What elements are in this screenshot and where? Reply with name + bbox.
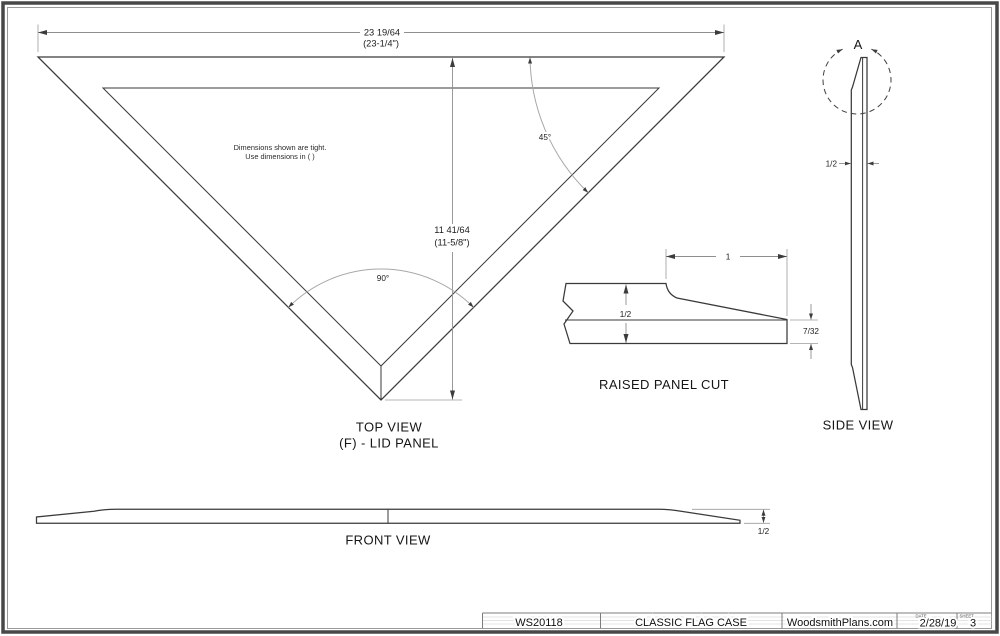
detail-marker-a: A <box>854 37 863 52</box>
side-thickness-dim: 1/2 <box>826 160 838 169</box>
website: WoodsmithPlans.com <box>787 617 893 629</box>
front-view-label: FRONT VIEW <box>345 533 431 548</box>
plan-number: WS20118 <box>515 617 563 629</box>
side-view-label: SIDE VIEW <box>823 418 894 433</box>
apex-angle-value: 90° <box>377 274 389 283</box>
drawing-page: Dimensions shown are tight. Use dimensio… <box>0 0 1000 636</box>
tight-dimensions-note-line2: Use dimensions in ( ) <box>245 152 314 161</box>
raised-panel-cut-label: RAISED PANEL CUT <box>599 377 729 392</box>
tight-dimensions-note-line1: Dimensions shown are tight. <box>234 143 327 152</box>
side-view-profile <box>851 58 867 410</box>
bevel-width-dim: 1 <box>726 253 731 262</box>
width-dim-value: 23 19/64 <box>364 28 400 38</box>
front-thickness-dim: 1/2 <box>758 527 770 536</box>
corner-angle-value: 45° <box>539 133 551 142</box>
tip-thickness-dim: 7/32 <box>803 327 819 336</box>
top-view-sublabel: (F) - LID PANEL <box>339 436 439 451</box>
height-dim-paren: (11-5/8") <box>434 238 469 248</box>
date-value: 2/28/19 <box>920 618 957 630</box>
drawing-sheet: Dimensions shown are tight. Use dimensio… <box>0 0 1000 636</box>
width-dim-paren: (23-1/4") <box>363 39 399 49</box>
panel-thickness-dim: 1/2 <box>620 310 632 319</box>
top-view-label: TOP VIEW <box>356 420 423 435</box>
sheet-number: 3 <box>970 618 976 630</box>
drawing-title: CLASSIC FLAG CASE <box>635 617 747 629</box>
height-dim-value: 11 41/64 <box>434 225 470 235</box>
